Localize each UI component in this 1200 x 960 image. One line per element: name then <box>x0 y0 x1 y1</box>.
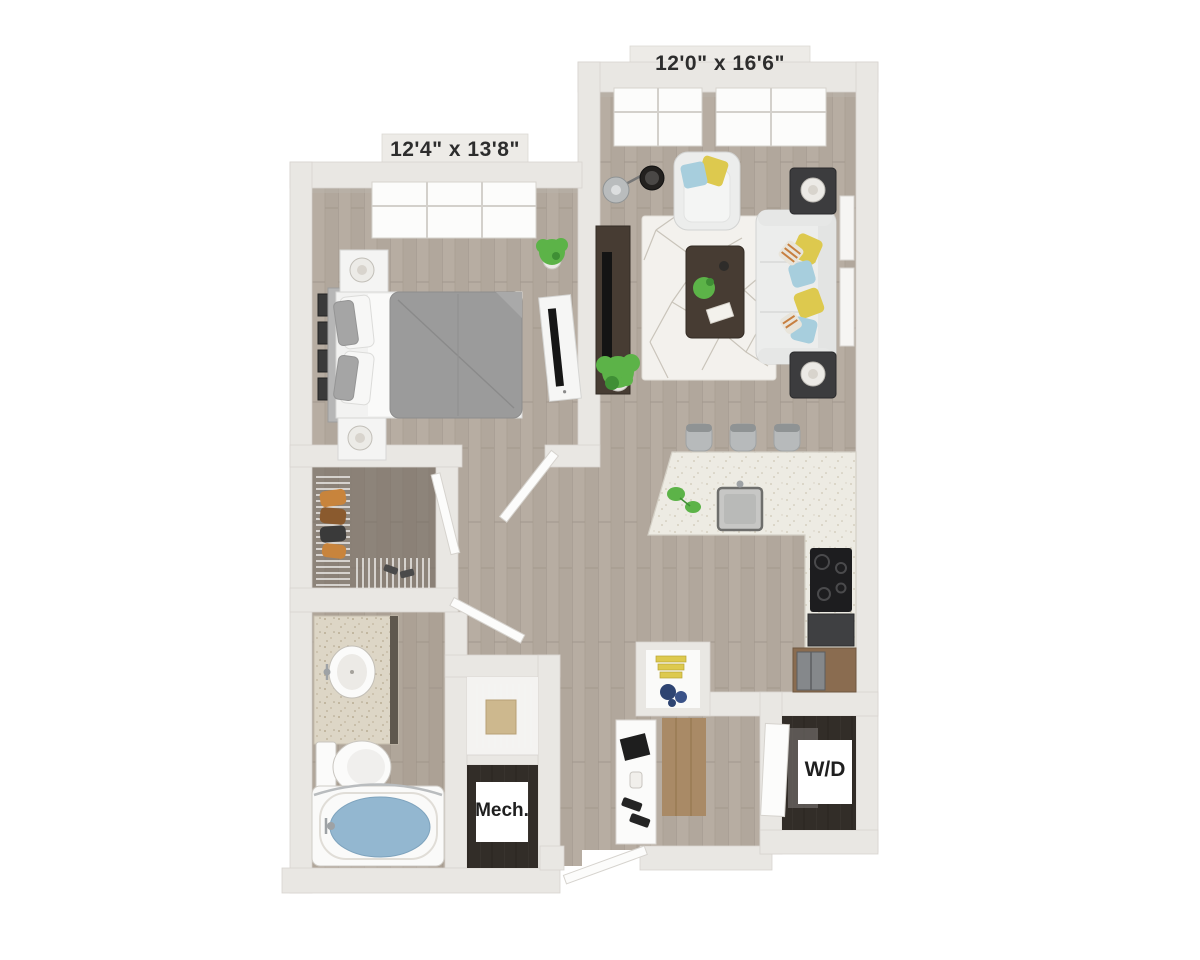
wall-laundry-bottom <box>760 830 878 854</box>
kitchen-sink <box>718 481 762 531</box>
vase <box>630 772 642 788</box>
utility-closets <box>467 677 538 868</box>
tub-faucet <box>327 822 335 830</box>
wall-utility-right <box>538 655 560 870</box>
bowl <box>719 261 729 271</box>
nightstand-top <box>340 250 388 292</box>
wall-art-shelves <box>840 196 854 346</box>
bedroom-window <box>372 182 536 238</box>
entry-mat <box>662 718 706 816</box>
bedroom-dimensions-label: 12'4" x 13'8" <box>305 138 605 162</box>
washer-dryer-label: W/D <box>775 758 875 782</box>
living-window-right <box>716 88 826 146</box>
bar-stool <box>774 424 800 451</box>
wall-bathroom-top <box>290 588 458 612</box>
pantry <box>636 642 710 716</box>
kitchen-faucet <box>737 481 744 488</box>
wall-entry-bottom-b <box>640 846 772 870</box>
wall-bottom-left <box>282 868 560 893</box>
wall-right <box>856 62 878 852</box>
side-table-top <box>790 168 836 214</box>
vanity-cabinet-edge <box>390 616 398 744</box>
sofa-backrest <box>818 214 836 360</box>
refrigerator <box>793 648 856 692</box>
armchair <box>674 152 740 230</box>
bar-stool <box>730 424 756 451</box>
utility-divider <box>467 755 538 765</box>
floor-plan-canvas: 12'0" x 16'6" 12'4" x 13'8" W/D Mech. <box>0 0 1200 960</box>
entry <box>616 720 656 844</box>
dishwasher <box>808 614 854 646</box>
wall-laundry-top <box>706 692 878 716</box>
towel <box>486 700 516 734</box>
round-side-table <box>640 166 664 190</box>
sofa <box>756 210 836 364</box>
bar-stool <box>686 424 712 451</box>
living-window-left <box>614 88 702 146</box>
wall-entry-bottom-a <box>540 846 564 870</box>
living-room-dimensions-label: 12'0" x 16'6" <box>570 52 870 76</box>
bar-stools <box>686 424 800 451</box>
tv <box>602 252 612 364</box>
accent-pillow-blue <box>680 161 708 189</box>
mechanical-label: Mech. <box>452 800 552 822</box>
nightstand-bottom <box>338 418 386 460</box>
wall-bathroom-right <box>445 612 467 868</box>
wall-left <box>290 162 312 893</box>
bathtub <box>312 785 444 867</box>
console-table <box>616 720 656 844</box>
vanity-sink <box>314 616 398 744</box>
side-table-bottom <box>790 352 836 398</box>
bed <box>328 288 522 422</box>
coffee-table <box>686 246 744 338</box>
cooktop <box>810 548 852 612</box>
